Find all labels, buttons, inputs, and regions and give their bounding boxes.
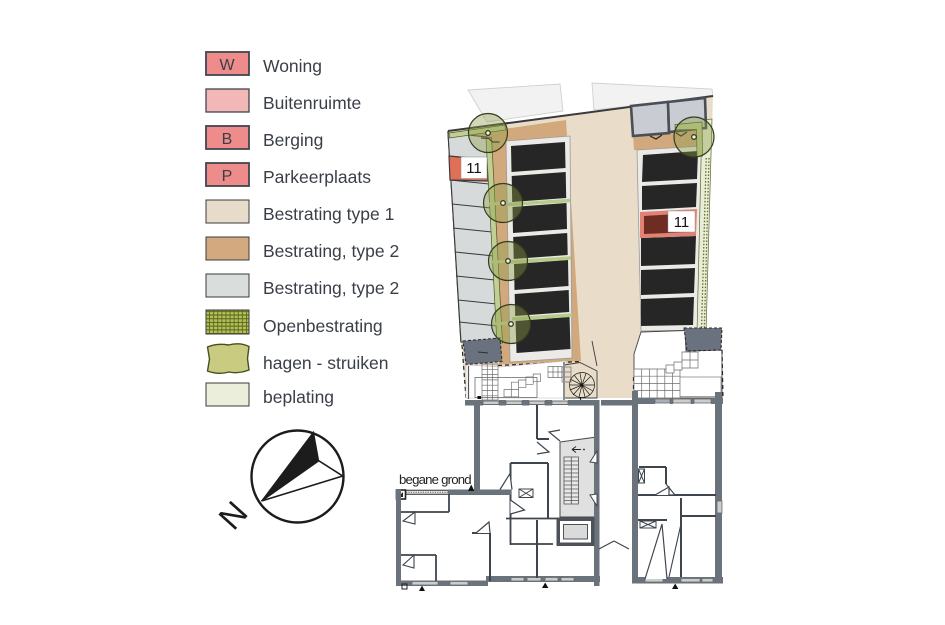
svg-text:Bestrating type 1: Bestrating type 1 xyxy=(263,204,394,224)
svg-text:hagen - struiken: hagen - struiken xyxy=(263,353,389,373)
svg-text:Woning: Woning xyxy=(263,56,322,76)
svg-text:begane grond: begane grond xyxy=(399,472,471,487)
svg-text:Bestrating, type 2: Bestrating, type 2 xyxy=(263,241,399,261)
svg-text:P: P xyxy=(222,168,233,185)
svg-text:B: B xyxy=(222,131,233,148)
svg-text:Openbestrating: Openbestrating xyxy=(263,316,383,336)
svg-text:beplating: beplating xyxy=(263,387,334,407)
svg-text:Berging: Berging xyxy=(263,130,323,150)
svg-text:N: N xyxy=(211,494,254,536)
svg-text:W: W xyxy=(219,57,235,74)
svg-text:Buitenruimte: Buitenruimte xyxy=(263,93,361,113)
svg-text:Bestrating, type 2: Bestrating, type 2 xyxy=(263,278,399,298)
svg-text:Parkeerplaats: Parkeerplaats xyxy=(263,167,371,187)
svg-text:11: 11 xyxy=(674,214,690,231)
svg-text:11: 11 xyxy=(466,160,482,177)
